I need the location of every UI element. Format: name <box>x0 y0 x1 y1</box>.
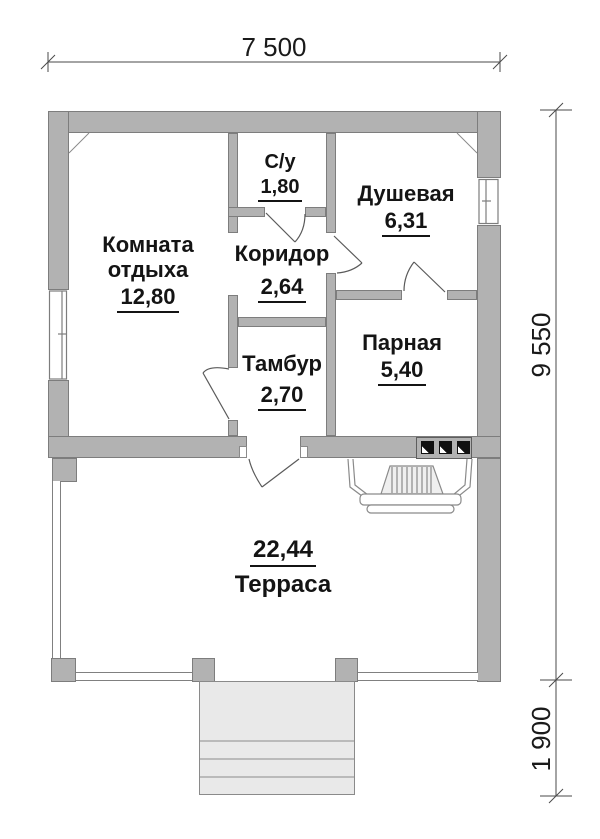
corner-chamfers <box>69 133 477 153</box>
dimension-height-label: 9 550 <box>526 285 556 405</box>
dimension-width-label: 7 500 <box>174 32 374 62</box>
door-wc <box>266 213 305 242</box>
room-label-wc: С/у 1,80 <box>245 151 315 199</box>
porch-bay <box>348 459 472 513</box>
window-right <box>479 180 498 224</box>
room-label-vestibule: Тамбур 2,70 <box>222 351 342 407</box>
stair-treads <box>200 741 354 777</box>
plan-linework <box>0 0 600 839</box>
door-exterior <box>249 459 299 487</box>
room-label-terrace: 22,44 Терраса <box>213 535 353 597</box>
room-label-corridor: Коридор 2,64 <box>222 241 342 299</box>
room-label-steam: Парная 5,40 <box>342 330 462 382</box>
floor-plan: 7 500 9 550 1 900 Комната отдыха 12,80 С… <box>0 0 600 839</box>
door-steam <box>404 262 445 292</box>
window-left <box>50 291 67 379</box>
room-label-rest: Комната отдыха 12,80 <box>78 232 218 309</box>
room-label-shower: Душевая 6,31 <box>336 181 476 233</box>
dimension-stairs-label: 1 900 <box>526 679 556 799</box>
